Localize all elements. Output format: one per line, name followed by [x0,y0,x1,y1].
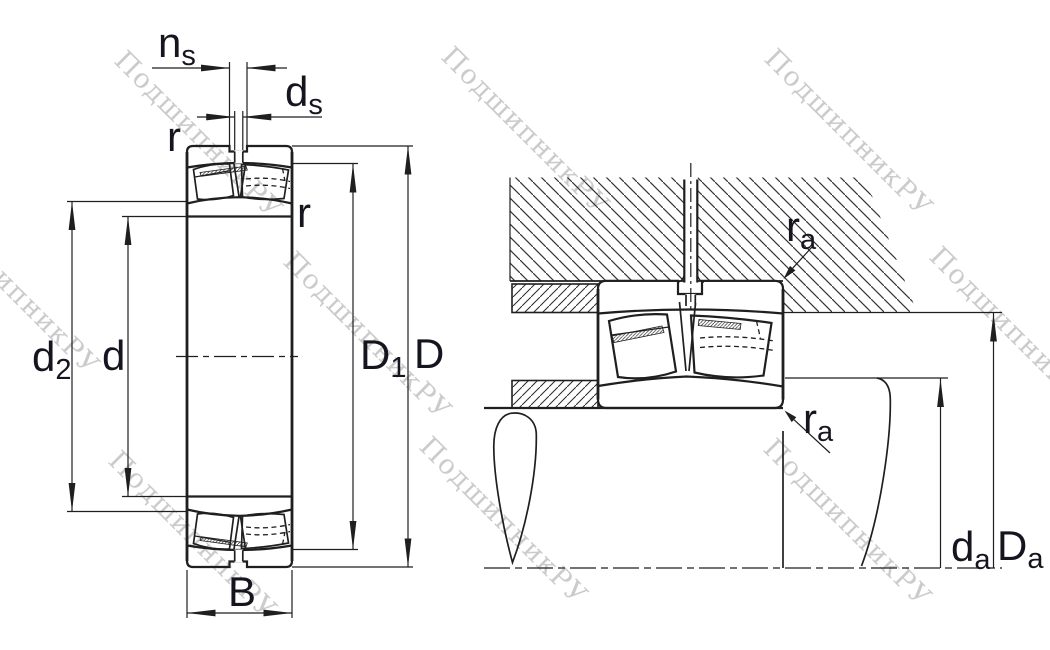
watermark-text: ПодшипникРУ [757,433,938,614]
dimension-B: B [187,568,292,618]
lube-hole-top [235,151,243,164]
bearing-drawing-page: ПодшипникРУ ПодшипникРУ ПодшипникРУ Подш… [0,0,1050,650]
lube-hole-bottom [235,550,243,563]
dim-label-ns: ns [158,19,196,72]
dim-label-D: D [414,330,444,377]
roller-bottom-right [242,514,289,549]
dim-label-ra-shaft: ra [803,395,834,448]
watermark-layer: ПодшипникРУ ПодшипникРУ ПодшипникРУ Подш… [0,41,1050,626]
dimension-ra-shaft: ra [785,395,835,453]
dim-label-r-outer: r [167,113,181,160]
dim-label-da: da [951,523,991,576]
dim-label-d: d [102,332,125,379]
mounted-cage-bar-right [698,320,741,330]
dim-label-ds: ds [285,68,323,121]
mounted-cage-bar-left [612,326,664,343]
mounted-roller-left [609,314,676,378]
left-section-view: ns ds r r d2 d [32,19,444,618]
cover-band-upper [512,284,598,313]
mounted-inner-ring [598,377,783,409]
hidden-lines-bottom [246,525,290,545]
cover-band-lower [512,381,598,409]
dim-label-D1: D1 [360,331,406,384]
dim-label-B: B [228,568,256,615]
right-mounting-view: ra ra Da da [484,163,1044,576]
bearing-drawing: ПодшипникРУ ПодшипникРУ ПодшипникРУ Подш… [0,0,1050,650]
dim-label-Da: Da [997,522,1044,575]
dim-label-r-inner: r [297,189,311,236]
